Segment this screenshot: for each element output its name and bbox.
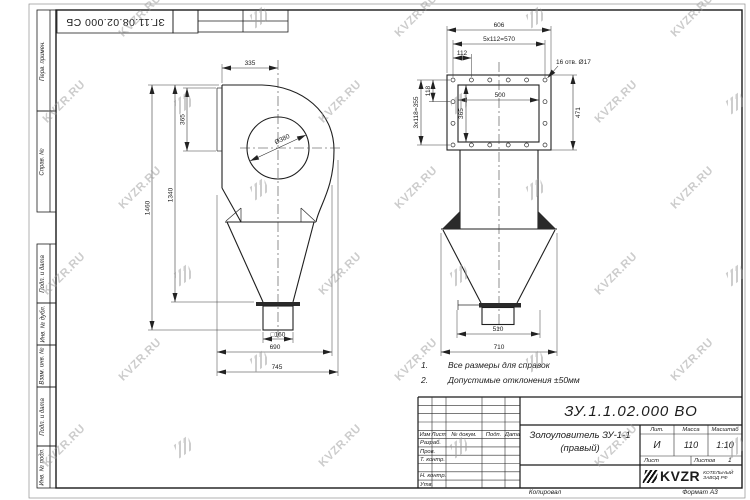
sidebar-label: Перв. примен. (40, 41, 46, 81)
col-podp: Подп. (482, 430, 505, 439)
kvzr-logo-text: KVZR (660, 468, 700, 484)
drawing-sheet: 335 365 1340 1460 690 745 Ø380 □160 (0, 0, 750, 500)
sidebar-cell-perv-primen: Перв. примен. (37, 10, 49, 111)
row-prov: Пров. (420, 449, 435, 455)
sidebar-label: Справ. № (40, 148, 46, 175)
mass-header: Масса (674, 425, 708, 434)
lit-header: Лит. (640, 425, 674, 434)
row-t-kontr: Т. контр. (420, 457, 445, 463)
format-label: Формат А3 (660, 489, 740, 496)
sidebar-label: Подп. и дата (40, 255, 46, 293)
logo-caption-line2: ЗАВОД РФ (703, 476, 733, 481)
mass-value: 110 (674, 434, 708, 456)
row-n-kontr: Н. контр. (420, 473, 446, 479)
sheets-value: 1 (728, 457, 732, 464)
top-stamp-cell: ЗГ.11.08.02.000 СБ (57, 10, 173, 33)
sidebar-cell-podp-data-2: Подп. и дата (37, 387, 49, 446)
sidebar-cell-podp-data-1: Подп. и дата (37, 244, 49, 303)
col-data: Дата (505, 430, 520, 439)
title-doc-number: ЗУ.1.1.02.000 ВО (522, 398, 740, 424)
title-name-line2: (правый) (522, 442, 638, 455)
sheet-label: Лист (644, 458, 659, 464)
note-2-number: 2. (421, 375, 428, 385)
sidebar-cell-inv-podl: Инв. № подл. (37, 446, 49, 488)
copied-label: Копировал (505, 489, 585, 496)
sidebar-cell-sprav-n: Справ. № (37, 111, 49, 212)
sidebar-cell-inv-dubl: Инв. № дубл. (37, 303, 49, 345)
sidebar-cell-vzam-inv: Взам. инв. № (37, 345, 49, 387)
note-2-text: Допустимые отклонения ±50мм (448, 375, 580, 385)
kvzr-logo-icon (643, 470, 659, 483)
note-1-text: Все размеры для справок (448, 360, 550, 370)
note-1-number: 1. (421, 360, 428, 370)
scale-header: Масштаб (708, 425, 742, 434)
title-name-line1: Золоуловитель ЗУ-1-1 (522, 429, 638, 442)
title-name: Золоуловитель ЗУ-1-1 (правый) (522, 429, 638, 463)
row-utv: Утв. (420, 482, 433, 488)
col-dokum: № докум. (446, 430, 482, 439)
top-stamp-doc-number: ЗГ.11.08.02.000 СБ (66, 16, 165, 28)
lit-value: И (640, 434, 674, 456)
col-list: Лист (432, 430, 446, 439)
scale-value: 1:10 (708, 434, 742, 456)
sidebar-label: Инв. № подл. (40, 448, 46, 485)
sidebar-label: Подп. и дата (40, 398, 46, 436)
col-izm: Изм (418, 430, 432, 439)
logo-cell: KVZR КОТЕЛЬНЫЙ ЗАВОД РФ (644, 466, 740, 486)
sidebar-label: Взам. инв. № (40, 347, 46, 384)
sidebar-label: Инв. № дубл. (40, 306, 46, 343)
row-razrab: Разраб. (420, 440, 441, 446)
text-layer: ЗГ.11.08.02.000 СБ Перв. примен. Справ. … (0, 0, 750, 500)
sheets-label: Листов (694, 458, 715, 464)
